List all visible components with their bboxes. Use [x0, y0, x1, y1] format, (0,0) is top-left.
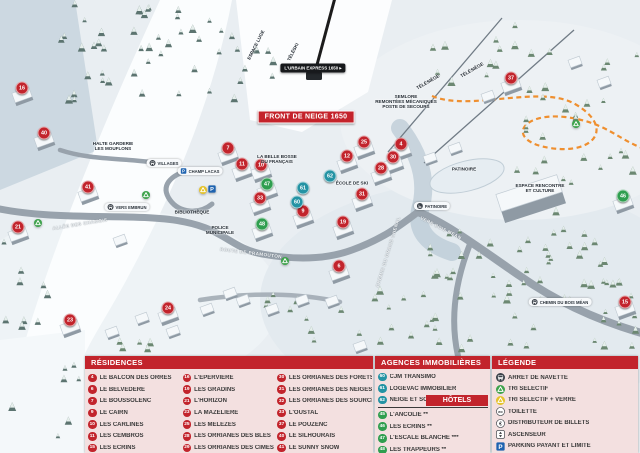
item-label: L'ESCALE BLANCHE *** [390, 435, 459, 441]
item-number-badge: 45 [378, 411, 387, 420]
item-label: LES CEMBROS [100, 433, 144, 439]
legend-item: €DISTRIBUTEUR DE BILLETS [496, 418, 636, 429]
item-label: LES TRAPPEURS ** [390, 447, 447, 453]
legend-item: 47L'ESCALE BLANCHE *** [378, 432, 488, 444]
item-number-badge: 16 [183, 374, 192, 383]
legend-item: 25LES MÉLÈZES [183, 419, 278, 431]
legend-item: 19LES GRADINS [183, 384, 278, 396]
legend-item: 31LES ORRIANES DES NEIGES [277, 384, 372, 396]
item-number-badge: 28 [183, 432, 192, 441]
item-label: LES ÉCRINS [100, 445, 136, 451]
item-number-badge: 37 [277, 420, 286, 429]
item-label: LE BALCON DES ORRES [100, 375, 172, 381]
item-label: LES CARLINES [100, 422, 144, 428]
recycle-green-icon [496, 385, 505, 394]
item-label: LE BOUSSOLENC [100, 398, 152, 404]
legend-item: 28LES ORRIANES DES BLÉS [183, 430, 278, 442]
item-label: LA MAZELIÈRE [194, 410, 238, 416]
item-number-badge: 62 [378, 396, 387, 405]
elevator-icon [496, 430, 505, 439]
item-number-badge: 6 [88, 385, 97, 394]
item-label: LE SUNNY SNOW [289, 445, 340, 451]
item-number-badge: 61 [378, 384, 387, 393]
legend-item: 11LES CEMBROS [88, 430, 183, 442]
legend-item: 37LE POUZENC [277, 419, 372, 431]
item-label: LES ECRINS ** [390, 424, 432, 430]
legend-item: PPARKING PAYANT ET LIMITÉ [496, 440, 636, 451]
item-label: LES ORRIANES DES CIMES [194, 445, 274, 451]
item-number-badge: 29 [183, 444, 192, 453]
item-number-badge: 11 [88, 432, 97, 441]
item-number-badge: 33 [277, 409, 286, 418]
item-label: TOILETTE [508, 409, 537, 415]
legende-header: LÉGENDE [492, 356, 638, 369]
legend-item: 30LES ORRIANES DES FORÊTS [277, 372, 372, 384]
residences-header: RÉSIDENCES [85, 356, 373, 369]
item-number-badge: 47 [378, 434, 387, 443]
legend-item: 40LE SILHOURAÏS [277, 430, 372, 442]
legend-item: 7LE BOUSSOLENC [88, 395, 183, 407]
legend-item: 9LE CAIRN [88, 407, 183, 419]
legend-item: 45L'ANCOLIE ** [378, 409, 488, 421]
item-number-badge: 31 [277, 385, 286, 394]
item-label: LES ORRIANES DES FORÊTS [289, 375, 372, 381]
item-number-badge: 41 [277, 444, 286, 453]
svg-text:WC: WC [498, 410, 504, 414]
legend-item: TRI SELECTIF [496, 383, 636, 394]
item-number-badge: 32 [277, 397, 286, 406]
euro-icon: € [496, 419, 505, 428]
item-label: LE POUZENC [289, 422, 328, 428]
item-label: LES ORRIANES DES NEIGES [289, 387, 372, 393]
legend-item: 29LES ORRIANES DES CIMES [183, 442, 278, 453]
recycle-yellow-icon [496, 396, 505, 405]
item-number-badge: 10 [88, 420, 97, 429]
item-number-badge: 30 [277, 374, 286, 383]
item-label: DISTRIBUTEUR DE BILLETS [508, 420, 589, 426]
legend-item: 60CJM TRANSIMO [378, 371, 488, 383]
legend-item: 16L'ÉPERVIÈRE [183, 372, 278, 384]
legend-item: TRI SELECTIF + VERRE [496, 395, 636, 406]
item-number-badge: 60 [378, 373, 387, 382]
item-number-badge: 23 [183, 409, 192, 418]
hotels-header: HÔTELS [426, 395, 488, 406]
wc-icon: WC [496, 407, 505, 416]
item-label: LES ORRIANES DES BLÉS [194, 433, 271, 439]
item-label: PARKING PAYANT ET LIMITÉ [508, 443, 591, 449]
item-label: L'ÉPERVIÈRE [194, 375, 233, 381]
bus-icon [496, 373, 505, 382]
item-label: LOGEVAC IMMOBILIER [390, 386, 457, 392]
item-number-badge: 21 [183, 397, 192, 406]
item-number-badge: 48 [378, 446, 387, 453]
legend-item: ASCENSEUR [496, 429, 636, 440]
item-number-badge: 4 [88, 374, 97, 383]
item-label: LES ORRIANES DES SOURCES [289, 398, 372, 404]
item-number-badge: 7 [88, 397, 97, 406]
item-label: LE BELVÉDÈRE [100, 387, 146, 393]
ski-resort-map: FRONT DE NEIGE 1650 L'URBAIN EXPRESS 165… [0, 0, 640, 453]
parking-icon: P [496, 442, 505, 451]
legend-item: 61LOGEVAC IMMOBILIER [378, 383, 488, 395]
item-number-badge: 9 [88, 409, 97, 418]
legend-item: WCTOILETTE [496, 406, 636, 417]
legend-item: 10LES CARLINES [88, 419, 183, 431]
item-number-badge: 25 [183, 420, 192, 429]
legend-item: 33L'OUSTAL [277, 407, 372, 419]
item-number-badge: 19 [183, 385, 192, 394]
agences-hotels-panel: AGENCES IMMOBILIÈRES 60CJM TRANSIMO61LOG… [375, 356, 490, 453]
legend-item: 4LE BALCON DES ORRES [88, 372, 183, 384]
item-label: LE CAIRN [100, 410, 128, 416]
item-label: TRI SELECTIF + VERRE [508, 397, 576, 403]
legend-item: 6LE BELVÉDÈRE [88, 384, 183, 396]
legend-item: 41LE SUNNY SNOW [277, 442, 372, 453]
item-label: TRI SELECTIF [508, 386, 548, 392]
item-number-badge: 46 [378, 422, 387, 431]
agences-header: AGENCES IMMOBILIÈRES [375, 356, 490, 369]
legend-item: 21L'HORIZON [183, 395, 278, 407]
item-number-badge: 15 [88, 444, 97, 453]
item-label: L'HORIZON [194, 398, 227, 404]
residences-panel: RÉSIDENCES 4LE BALCON DES ORRES6LE BELVÉ… [85, 356, 373, 453]
svg-text:P: P [498, 444, 502, 451]
item-label: CJM TRANSIMO [390, 374, 436, 380]
item-label: LES GRADINS [194, 387, 235, 393]
legende-panel: LÉGENDE ARRET DE NAVETTETRI SELECTIFTRI … [492, 356, 638, 453]
item-label: ARRET DE NAVETTE [508, 375, 568, 381]
legend-item: 15LES ÉCRINS [88, 442, 183, 453]
legend-item: 32LES ORRIANES DES SOURCES [277, 395, 372, 407]
svg-text:€: € [499, 421, 502, 427]
item-label: ASCENSEUR [508, 432, 546, 438]
legend-item: 46LES ECRINS ** [378, 421, 488, 433]
item-label: L'ANCOLIE ** [390, 412, 428, 418]
item-number-badge: 40 [277, 432, 286, 441]
item-label: LE SILHOURAÏS [289, 433, 335, 439]
legend-item: ARRET DE NAVETTE [496, 372, 636, 383]
item-label: LES MÉLÈZES [194, 422, 236, 428]
legend-item: 48LES TRAPPEURS ** [378, 444, 488, 453]
legend-item: 23LA MAZELIÈRE [183, 407, 278, 419]
item-label: L'OUSTAL [289, 410, 318, 416]
